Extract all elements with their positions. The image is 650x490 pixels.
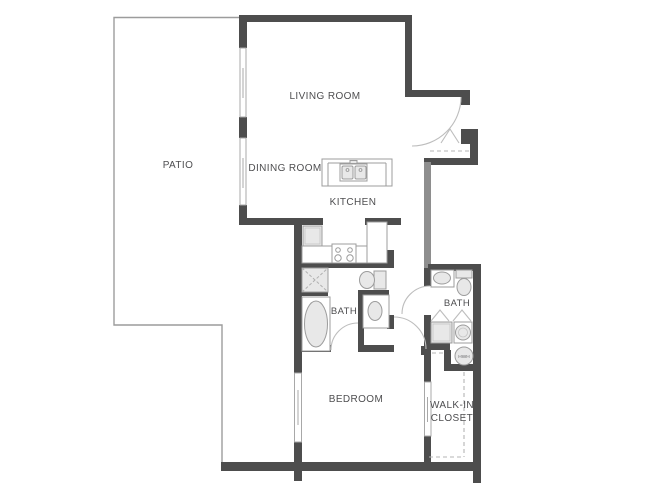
floor-plan-page: HWH PATIO LIVING ROOM DINING ROOM KITCHE… [0,0,650,490]
wall-entry-nook [461,129,470,144]
entry-door-swing [412,97,461,146]
toilet-guest-icon [456,270,472,296]
water-heater-label: HWH [458,354,470,360]
wall-living-right [405,15,412,97]
wall-hall-sliver-top [387,250,394,268]
wall-bath1-top [294,263,390,268]
walk-in-closet-label-line2: CLOSET [431,413,473,424]
washer-icon [431,322,452,343]
wall-east [473,264,481,483]
wall-interior-west [294,218,302,352]
wall-closet-left-post [424,436,431,462]
window-living-upper [240,48,246,117]
wall-bath2-left-lower [424,315,431,382]
patio-edge [114,18,243,464]
patio-outline [114,18,243,464]
wall-entry-stub [461,97,470,105]
bath-main-label: BATH [331,306,357,317]
wall-bottom [221,462,481,471]
wall-entry-closet-bottom [424,158,478,165]
kitchen-counters [302,222,387,263]
vanity-sink-guest-icon [431,270,454,287]
laundry-bifold-left-icon [431,310,449,321]
floor-plan-drawing: HWH PATIO LIVING ROOM DINING ROOM KITCHE… [0,0,650,490]
wall-bedroom-west-lower [294,442,302,481]
dryer-icon [454,322,472,343]
bath1-door-swing [331,323,358,350]
kitchen-island [322,159,392,186]
water-heater-icon: HWH [455,347,473,365]
bath2-door-swing [402,286,430,314]
wall-entry-top [405,90,470,97]
shower-icon [302,268,328,292]
wall-living-top [243,15,412,22]
kitchen-label: KITCHEN [330,197,377,208]
bath2-fixtures: HWH [431,270,473,365]
bath-guest-label: BATH [444,298,470,309]
wall-utility-2 [444,350,451,371]
wall-bedroom-west-upper [294,346,302,373]
wall-hall-east [424,162,431,268]
window-bedroom [295,373,302,442]
refrigerator-icon [303,226,322,246]
patio-label: PATIO [163,160,194,171]
kitchen-counter-right [367,222,387,263]
wall-utility-1 [431,343,450,350]
bathtub-icon [302,297,330,351]
wall-bedroom-north-mid [358,345,394,352]
entry-closet-bifold-icon [441,129,459,143]
wall-post-patio-2 [239,117,247,138]
range-stove-icon [332,244,356,263]
vanity-sink-main-icon [363,295,389,328]
walk-in-closet-label-line1: WALK-IN [430,400,474,411]
laundry-bifold-right-icon [453,310,471,321]
bedroom-door-swing [394,317,426,349]
wall-dining-south [239,218,323,225]
dining-room-label: DINING ROOM [248,163,321,174]
toilet-main-icon [360,271,387,289]
living-room-label: LIVING ROOM [289,91,360,102]
window-dining [240,138,246,205]
bedroom-label: BEDROOM [329,394,383,405]
wall-post-patio-1 [239,15,247,48]
